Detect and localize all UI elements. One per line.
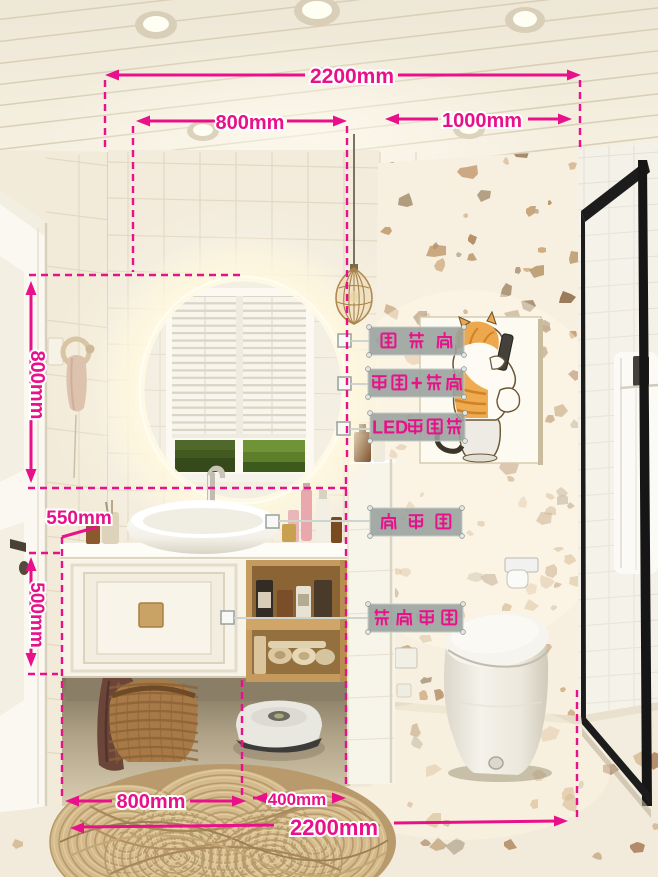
svg-text:2200mm: 2200mm (310, 65, 394, 88)
svg-text:LED: LED (372, 418, 408, 438)
svg-text:500mm: 500mm (26, 582, 47, 648)
svg-text:800mm: 800mm (216, 112, 285, 134)
svg-text:800mm: 800mm (117, 791, 186, 813)
svg-text:2200mm: 2200mm (290, 815, 378, 840)
svg-text:1000mm: 1000mm (442, 110, 522, 132)
svg-text:800mm: 800mm (26, 351, 48, 420)
svg-text:550mm: 550mm (46, 508, 112, 529)
svg-text:400mm: 400mm (268, 790, 327, 809)
